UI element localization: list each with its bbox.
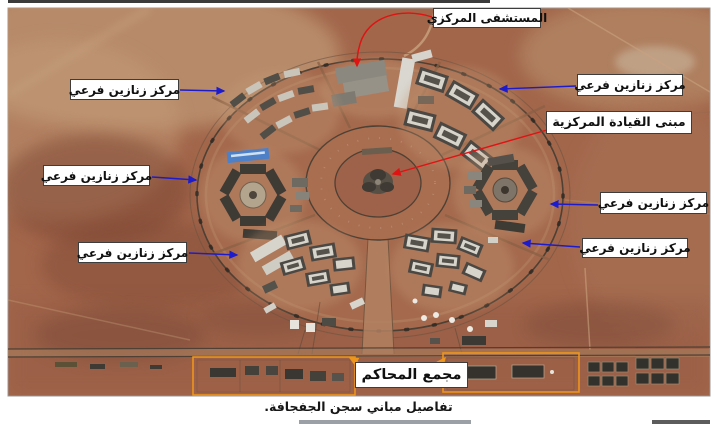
adjacent-image-edge-bottom-right — [652, 420, 710, 424]
cells-cluster-se — [390, 223, 514, 313]
label-central-command: مبنى القيادة المركزية — [546, 111, 692, 134]
label-sub-cells-sw: مركز زنازين فرعي — [78, 242, 187, 263]
label-sub-cells-se: مركز زنازين فرعي — [582, 238, 688, 258]
adjacent-image-edge-bottom — [299, 420, 471, 424]
annotated-satellite-figure: المستشفى المركزي مركز زنازين فرعي مركز ز… — [0, 0, 717, 424]
label-sub-cells-w: مركز زنازين فرعي — [43, 165, 150, 186]
label-sub-cells-e: مركز زنازين فرعي — [600, 192, 707, 214]
label-courts-complex: مجمع المحاكم — [355, 362, 468, 388]
cells-nw-arrow — [180, 90, 224, 91]
label-sub-cells-nw: مركز زنازين فرعي — [70, 79, 179, 100]
adjacent-image-edge-top — [8, 0, 490, 3]
label-central-hospital: المستشفى المركزي — [433, 8, 541, 28]
courts-compound-left — [197, 360, 350, 392]
cells-e-arrow — [551, 204, 598, 205]
cells-cluster-sw — [238, 220, 362, 310]
label-sub-cells-ne: مركز زنازين فرعي — [577, 74, 683, 96]
figure-caption: تفاصيل مباني سجن الجفجافة. — [0, 399, 717, 414]
cells-cluster-e — [453, 146, 557, 238]
